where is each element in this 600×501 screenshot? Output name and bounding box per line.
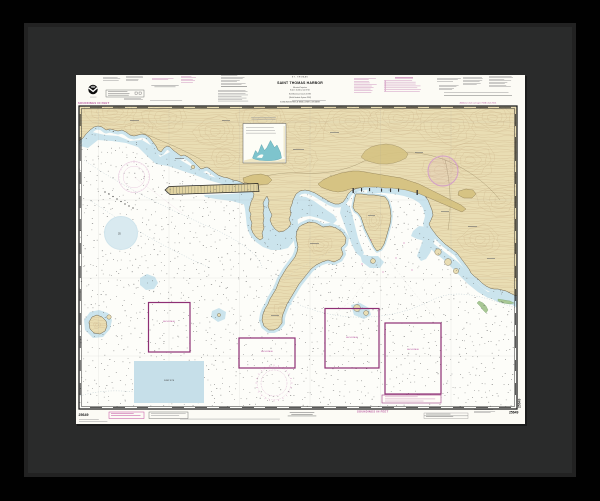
svg-text:25649: 25649 [518, 398, 522, 408]
svg-text:SOUNDINGS IN FEET: SOUNDINGS IN FEET [78, 101, 110, 105]
svg-text:ANCHORAGE: ANCHORAGE [163, 320, 175, 323]
svg-text:25649: 25649 [79, 413, 89, 417]
svg-text:ANCHORAGE: ANCHORAGE [407, 348, 419, 351]
svg-text:25649: 25649 [509, 411, 519, 415]
svg-text:DUMP SITE: DUMP SITE [164, 380, 175, 382]
svg-text:ST. THOMAS: ST. THOMAS [292, 76, 309, 79]
svg-text:Additional chart coverage in N: Additional chart coverage in NGA Chart 2… [460, 101, 497, 104]
svg-text:SAINT THOMAS HARBOR: SAINT THOMAS HARBOR [277, 81, 323, 85]
svg-text:ANCHORAGE: ANCHORAGE [346, 336, 358, 339]
svg-text:ANCHORAGE: ANCHORAGE [261, 350, 273, 353]
svg-text:SOUNDINGS IN FEET: SOUNDINGS IN FEET [357, 410, 389, 414]
